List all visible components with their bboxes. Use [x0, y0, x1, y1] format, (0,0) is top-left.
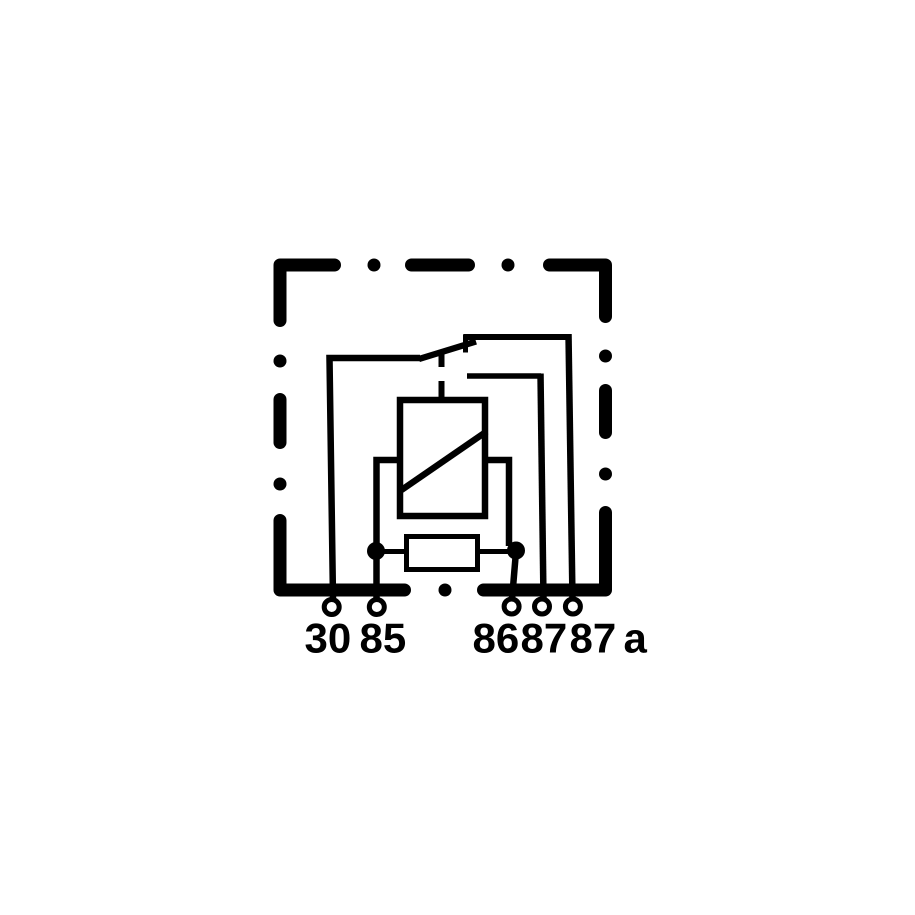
svg-text:a: a [624, 615, 648, 662]
svg-text:87: 87 [570, 615, 617, 662]
svg-text:30: 30 [305, 615, 352, 662]
svg-text:85: 85 [360, 615, 407, 662]
svg-text:86: 86 [473, 615, 520, 662]
svg-text:87: 87 [521, 615, 568, 662]
